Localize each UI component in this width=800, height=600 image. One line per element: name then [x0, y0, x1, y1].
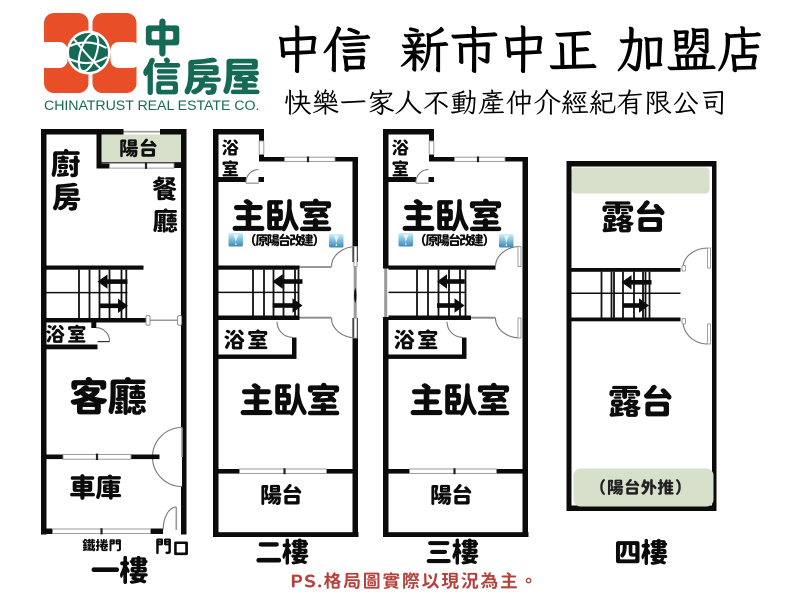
- svg-text:CHINATRUST REAL ESTATE CO.: CHINATRUST REAL ESTATE CO.: [44, 98, 260, 114]
